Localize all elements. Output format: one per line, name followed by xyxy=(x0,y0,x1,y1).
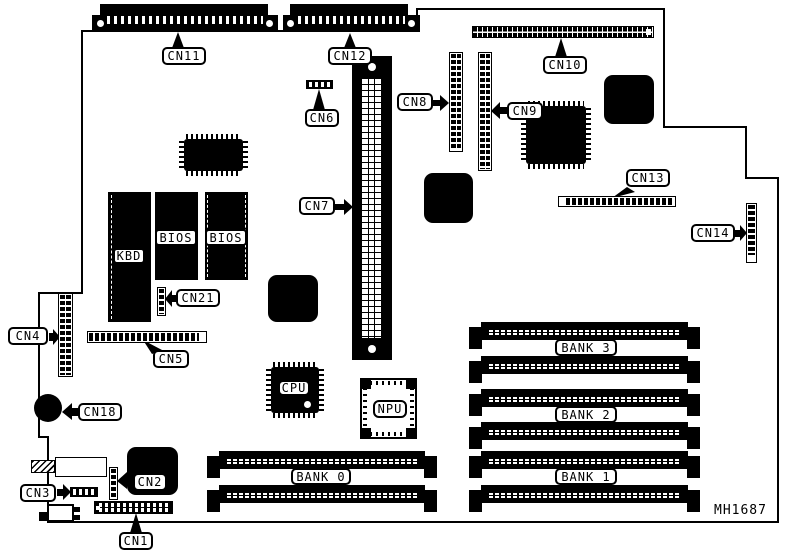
cn8-connector xyxy=(449,52,463,152)
kbd-chip-label: KBD xyxy=(113,248,145,264)
cn11-callout: CN11 xyxy=(162,47,206,65)
bios1-chip-label: BIOS xyxy=(155,229,197,246)
cn2-connector xyxy=(109,467,118,500)
cn1-pin1-cell xyxy=(96,506,100,510)
cn5-connector xyxy=(87,331,207,343)
bank3-label: BANK 3 xyxy=(555,339,617,356)
cn12-pointer xyxy=(344,33,356,48)
kbd-chip: KBD xyxy=(108,192,151,322)
cn4-connector xyxy=(58,293,73,377)
cn21-callout: CN21 xyxy=(176,289,220,307)
cn1-pins-row1 xyxy=(99,503,171,507)
npu-ticks-left xyxy=(363,388,367,429)
qfp1-pins-right xyxy=(243,141,248,169)
kbd-notch-line xyxy=(111,195,112,319)
plcc-chip-center xyxy=(268,275,318,322)
cn12-callout: CN12 xyxy=(328,47,372,65)
cn4-callout: CN4 xyxy=(8,327,48,345)
bank2-slot2 xyxy=(481,422,688,440)
bios-chip-2: BIOS xyxy=(205,192,248,280)
din-tab-right-bottom xyxy=(74,515,80,520)
motherboard-diagram: KBD BIOS BIOS CPU NPU BANK 0 xyxy=(0,0,786,558)
cn6-connector xyxy=(306,80,333,89)
cn3-pointer xyxy=(57,484,71,500)
cn21-connector xyxy=(157,287,166,316)
cn11-pointer xyxy=(172,32,184,48)
cn10-pins xyxy=(473,27,653,37)
cn6-pointer xyxy=(313,89,325,110)
cn10-pin1-cell xyxy=(646,29,651,35)
npu-ticks-top xyxy=(370,381,407,385)
bank0-slot1 xyxy=(219,451,425,469)
cn12-mount-hole-left xyxy=(287,20,294,27)
cpu-pins-right xyxy=(319,369,324,411)
din-tab-left xyxy=(39,512,48,521)
bank3-slot2 xyxy=(481,356,688,374)
cn12-connector-top xyxy=(290,4,408,15)
cn11-pins xyxy=(107,16,263,24)
cn14-connector xyxy=(746,203,757,263)
cn10-callout: CN10 xyxy=(543,56,587,74)
bios-chip-1: BIOS xyxy=(155,192,198,280)
cn18-component xyxy=(34,394,62,422)
cpu-chip: CPU xyxy=(266,362,324,418)
cn10-pointer xyxy=(555,38,567,57)
npu-corner-bl xyxy=(362,428,371,437)
component-box xyxy=(55,457,107,477)
cn6-callout: CN6 xyxy=(305,109,339,127)
qfp1-body xyxy=(184,139,243,171)
cn14-pin1-cell xyxy=(748,255,755,261)
cn13-connector xyxy=(558,196,676,207)
npu-ticks-bottom xyxy=(370,432,407,436)
cn3-connector xyxy=(70,487,98,497)
cn11-connector-body xyxy=(92,15,278,32)
plcc-chip-top-right xyxy=(604,75,654,124)
cn8-callout: CN8 xyxy=(397,93,433,111)
cn13-pin1-cell xyxy=(560,198,566,205)
cn12-pins xyxy=(298,16,405,24)
oscillator xyxy=(31,460,55,473)
cn10-connector xyxy=(472,26,654,38)
cn1-connector xyxy=(94,501,173,514)
bank0-slot2 xyxy=(219,485,425,503)
part-number: MH1687 xyxy=(714,503,767,518)
cn18-pointer xyxy=(62,403,79,420)
bios2-chip-label: BIOS xyxy=(205,229,247,246)
npu-chip-label: NPU xyxy=(373,400,407,418)
cn7-contacts xyxy=(361,77,382,339)
bank2-label: BANK 2 xyxy=(555,406,617,423)
cpu-chip-label: CPU xyxy=(279,381,309,395)
cn11-mount-hole-right xyxy=(266,20,273,27)
cn13-callout: CN13 xyxy=(626,169,670,187)
cn1-pins-row2 xyxy=(99,508,171,512)
cn5-pin1-cell xyxy=(199,333,205,341)
bank0-label: BANK 0 xyxy=(291,468,351,485)
cn2-callout: CN2 xyxy=(133,473,167,491)
cn9-pointer xyxy=(491,102,508,119)
cn7-hole-bottom xyxy=(368,345,376,353)
npu-corner-tl xyxy=(362,380,371,389)
cpu-pins-bottom xyxy=(273,413,317,418)
cn9-connector xyxy=(478,52,492,171)
qfp2-pins-right xyxy=(586,108,591,162)
qfp1-pins-bottom xyxy=(186,171,241,176)
cn3-callout: CN3 xyxy=(20,484,56,502)
cn11-connector-top xyxy=(100,4,268,15)
cn12-mount-hole-right xyxy=(408,20,415,27)
bank3-slot1 xyxy=(481,322,688,340)
cn9-callout: CN9 xyxy=(507,102,543,120)
bank2-slot1 xyxy=(481,389,688,407)
cn12-connector-body xyxy=(283,15,420,32)
bank1-slot1 xyxy=(481,451,688,469)
npu-socket: NPU xyxy=(360,378,417,439)
cn14-callout: CN14 xyxy=(691,224,735,242)
npu-ticks-right xyxy=(410,388,414,429)
cn11-mount-hole-left xyxy=(97,20,104,27)
cn5-callout: CN5 xyxy=(153,350,189,368)
qfp-chip-1 xyxy=(179,134,248,176)
npu-corner-tr xyxy=(406,380,415,389)
cpu-pin1-dot xyxy=(304,401,311,408)
cn7-callout: CN7 xyxy=(299,197,335,215)
bank1-slot2 xyxy=(481,485,688,503)
cn18-callout: CN18 xyxy=(78,403,122,421)
keyboard-din-connector xyxy=(47,504,74,522)
qfp2-pins-bottom xyxy=(528,164,584,169)
cn7-slot xyxy=(352,56,392,360)
npu-corner-br xyxy=(406,428,415,437)
din-tab-right-top xyxy=(74,507,80,512)
cn8-pointer xyxy=(432,95,449,111)
plcc-chip-middle xyxy=(424,173,473,223)
cn7-pointer xyxy=(335,199,353,215)
cn1-callout: CN1 xyxy=(119,532,153,550)
bank1-label: BANK 1 xyxy=(555,468,617,485)
